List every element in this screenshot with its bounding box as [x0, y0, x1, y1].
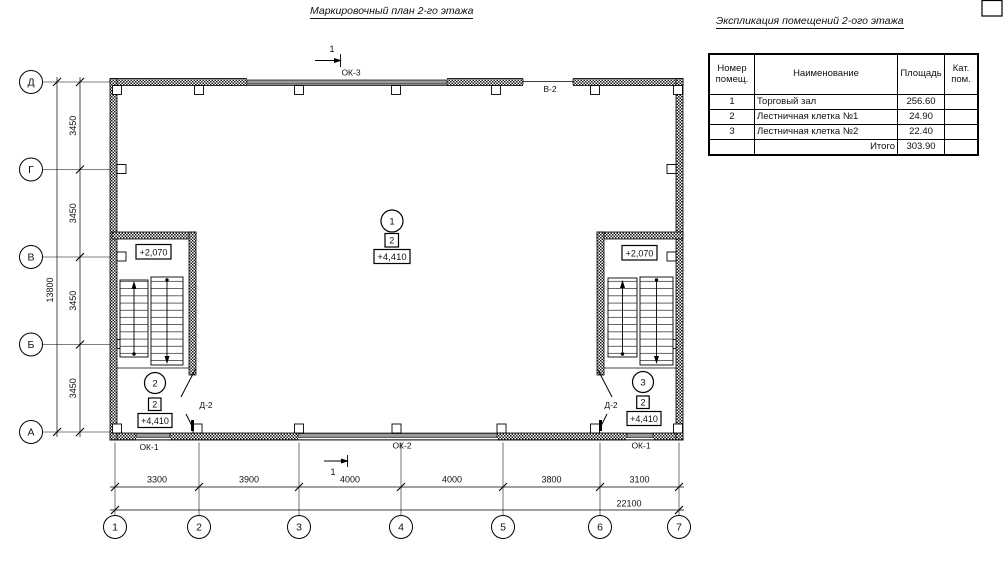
door-label-d2-left: Д-2	[199, 400, 213, 410]
dimension-value: 3450	[68, 116, 78, 136]
drawing-sheet: Маркировочный план 2-го этажа Экспликаци…	[0, 0, 1005, 582]
dimension-value: 3800	[541, 475, 561, 485]
dimension-value: 3300	[147, 475, 167, 485]
door-swing	[598, 369, 613, 397]
window-ok1-left	[136, 434, 170, 438]
axis-label: 3	[296, 522, 302, 534]
sheet-frame-corner	[982, 1, 1002, 17]
door-swing	[181, 369, 196, 397]
dimension-value: 3450	[68, 291, 78, 311]
dimension-value: 3900	[239, 475, 259, 485]
room-number: 2	[152, 379, 157, 390]
axis-label: 2	[196, 522, 202, 534]
elevation-value: +4,410	[377, 252, 406, 263]
elevation-value: +2,070	[140, 248, 168, 258]
section-mark-top: 1	[315, 44, 342, 67]
window-ok1-right	[627, 434, 653, 438]
room-marker-3: 3 2 +4,410	[627, 372, 661, 426]
dimension-value: 3100	[629, 475, 649, 485]
axis-label: 4	[398, 522, 404, 534]
room-number: 3	[640, 378, 645, 389]
category-value: 2	[389, 236, 394, 246]
window-ok3	[247, 80, 447, 84]
dimension-total: 22100	[616, 499, 641, 509]
axis-label: 1	[112, 522, 118, 534]
axis-label: А	[27, 427, 34, 439]
window-label-ok3: ОК-3	[341, 68, 360, 78]
dimensions-bottom: 3300 3900 4000 4000 3800 3100 22100	[110, 475, 684, 515]
axis-label: Б	[28, 339, 35, 351]
window-ok2	[298, 434, 497, 438]
axis-label: 6	[597, 522, 603, 534]
dimension-total: 13800	[45, 277, 55, 302]
window-label-ok1-right: ОК-1	[631, 441, 650, 451]
door-label-d2-right: Д-2	[604, 400, 618, 410]
room-number: 1	[389, 217, 394, 228]
window-label-ok2: ОК-2	[392, 441, 411, 451]
category-value: 2	[640, 398, 645, 408]
dimension-value: 3450	[68, 378, 78, 398]
dimension-value: 4000	[340, 475, 360, 485]
section-number: 1	[330, 467, 335, 477]
vent-label-v2: В-2	[543, 84, 557, 94]
floor-plan-drawing: Д Г В Б А 3450 3450 3450 3450 13800	[0, 0, 1005, 582]
axis-grid-left: Д Г В Б А	[20, 71, 111, 444]
axis-label: Г	[28, 164, 34, 176]
elevation-value: +2,070	[626, 249, 654, 259]
elevation-value: +4,410	[141, 416, 169, 426]
axis-label: В	[27, 252, 34, 264]
axis-label: 5	[500, 522, 506, 534]
window-label-ok1-left: ОК-1	[139, 442, 158, 452]
category-value: 2	[152, 400, 157, 410]
section-number: 1	[329, 44, 334, 54]
dimension-value: 3450	[68, 203, 78, 223]
room-marker-2: 2 2 +4,410	[138, 373, 172, 428]
axis-label: 7	[676, 522, 682, 534]
axis-label: Д	[27, 77, 34, 89]
room-marker-1: 1 2 +4,410	[374, 210, 410, 264]
elevation-value: +4,410	[630, 414, 658, 424]
dimension-value: 4000	[442, 475, 462, 485]
